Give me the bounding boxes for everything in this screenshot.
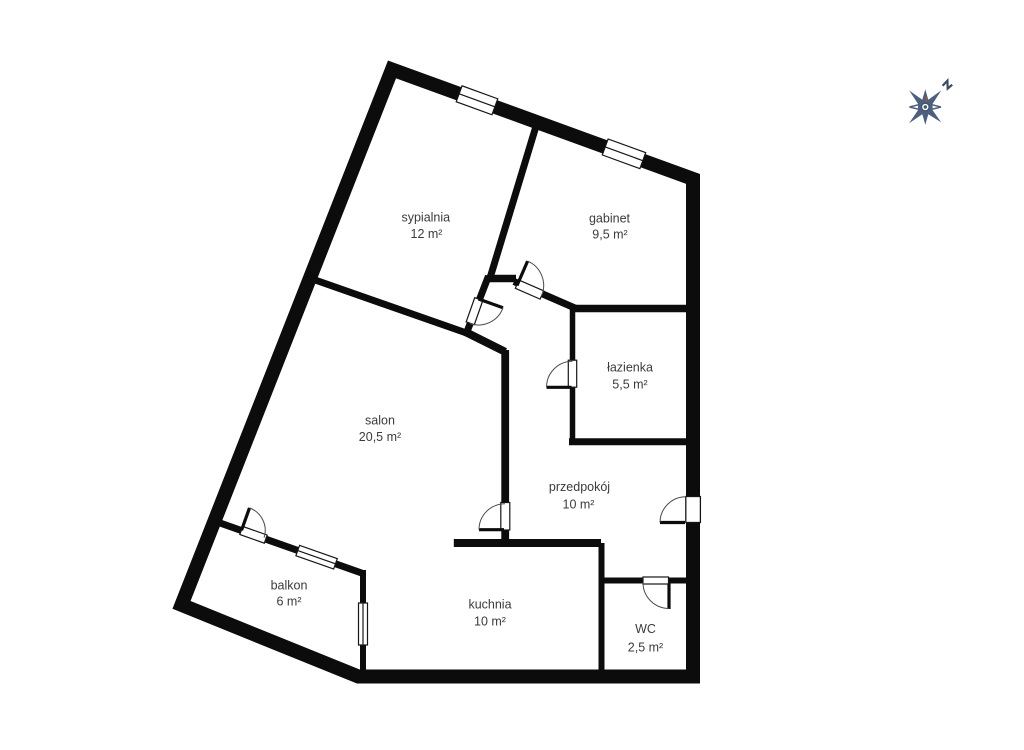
svg-text:5,5 m²: 5,5 m² (612, 378, 647, 392)
svg-text:gabinet: gabinet (589, 212, 631, 226)
svg-text:salon: salon (365, 414, 395, 428)
svg-text:sypialnia: sypialnia (401, 211, 450, 225)
svg-text:łazienka: łazienka (607, 361, 653, 375)
svg-text:20,5 m²: 20,5 m² (359, 430, 401, 444)
svg-text:9,5 m²: 9,5 m² (592, 228, 627, 242)
svg-text:kuchnia: kuchnia (468, 598, 511, 612)
svg-text:6 m²: 6 m² (277, 595, 302, 609)
svg-text:przedpokój: przedpokój (549, 480, 610, 494)
svg-text:2,5 m²: 2,5 m² (628, 641, 663, 655)
svg-text:10 m²: 10 m² (474, 615, 506, 629)
svg-text:10 m²: 10 m² (563, 498, 595, 512)
svg-text:12 m²: 12 m² (411, 227, 443, 241)
svg-text:WC: WC (635, 622, 656, 636)
svg-text:balkon: balkon (271, 579, 308, 593)
